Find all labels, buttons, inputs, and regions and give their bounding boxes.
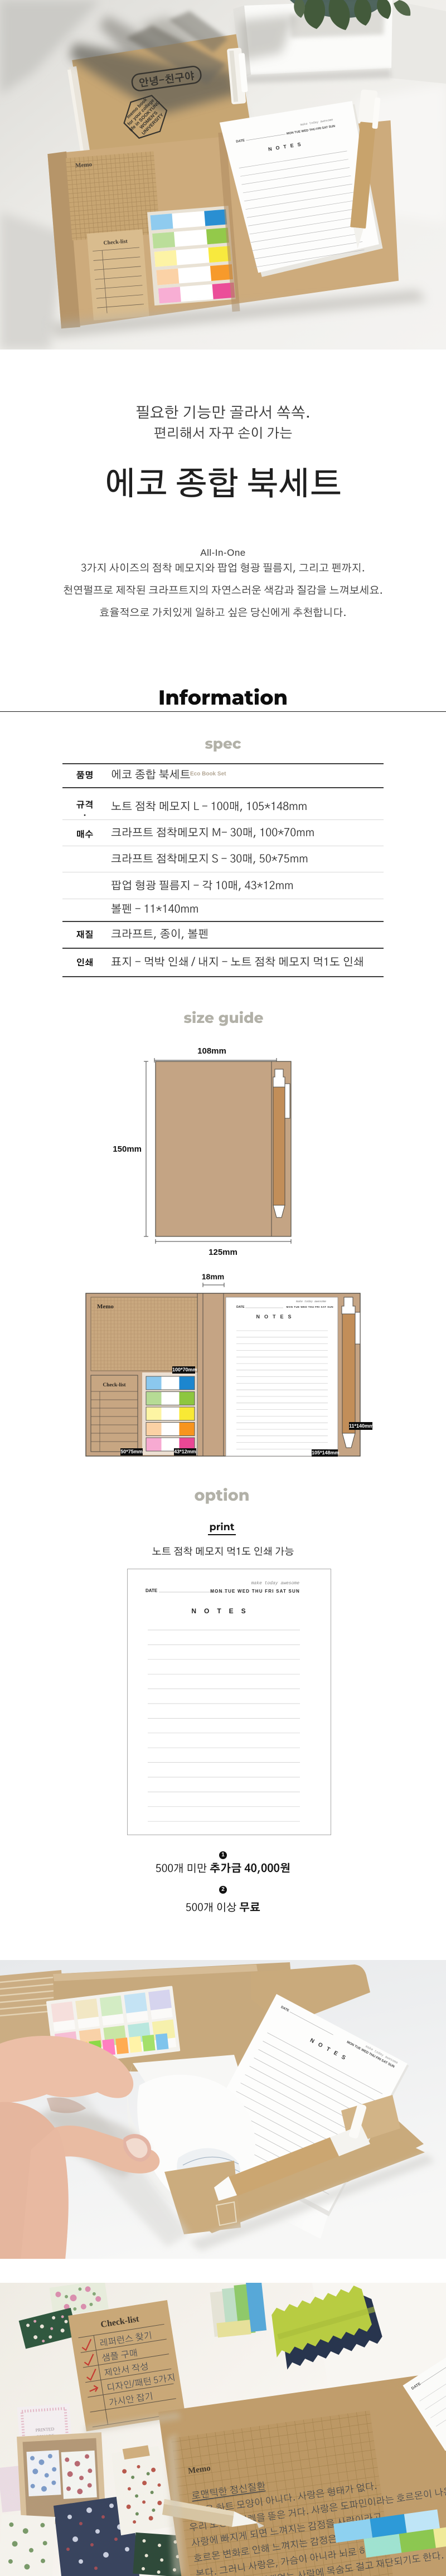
svg-text:Check-list: Check-list bbox=[103, 1382, 126, 1388]
svg-text:DATE: DATE bbox=[146, 1588, 158, 1593]
svg-text:Memo: Memo bbox=[97, 1303, 114, 1310]
svg-text:DATE: DATE bbox=[236, 1306, 245, 1309]
svg-text:150mm: 150mm bbox=[113, 1144, 142, 1154]
svg-text:125mm: 125mm bbox=[209, 1248, 237, 1257]
svg-text:MON TUE WED THU FRI SAT: MON TUE WED THU FRI SAT SUN bbox=[210, 1589, 300, 1594]
svg-text:make today awesome: make today awesome bbox=[296, 1300, 326, 1303]
svg-text:make today awesome: make today awesome bbox=[251, 1581, 300, 1586]
svg-text:108mm: 108mm bbox=[197, 1046, 226, 1056]
svg-text:MON TUE WED THU FRI SAT: MON TUE WED THU FRI SAT SUN bbox=[287, 1306, 334, 1308]
svg-text:18mm: 18mm bbox=[202, 1272, 224, 1281]
svg-text:NOTES: NOTES bbox=[256, 1314, 295, 1319]
svg-text:Memo: Memo bbox=[75, 161, 93, 169]
svg-text:NOTES: NOTES bbox=[191, 1607, 253, 1615]
